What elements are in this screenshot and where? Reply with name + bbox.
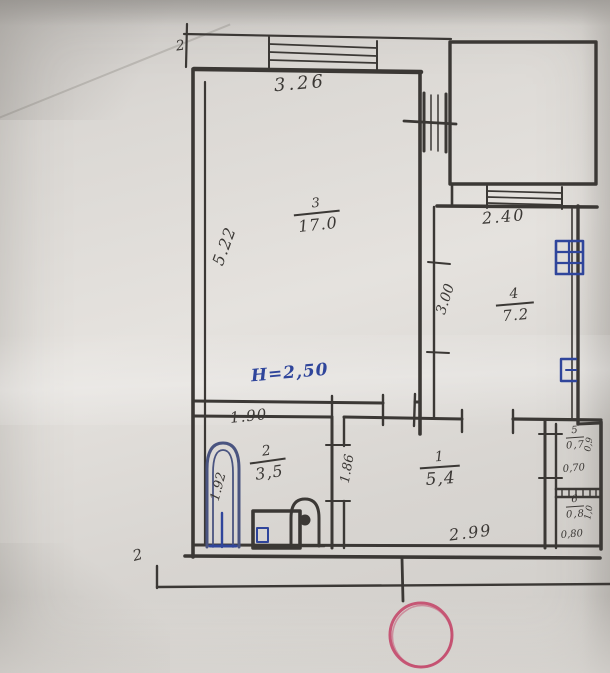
room3-right-wall bbox=[420, 72, 434, 434]
facade-line bbox=[157, 558, 610, 601]
radiator-icon bbox=[561, 359, 576, 381]
floor-plan-photo: 3.26 2 5.22 3 17.0 H=2,50 2.40 3.00 4 7.… bbox=[0, 0, 610, 673]
vent-shaft-icon bbox=[404, 93, 456, 152]
toilet-icon bbox=[286, 499, 324, 546]
fraction-bar bbox=[566, 505, 584, 507]
section-marker-top: 2 bbox=[175, 38, 186, 54]
room4-label: 4 7.2 bbox=[485, 285, 544, 327]
left-wall bbox=[193, 69, 205, 557]
sink-icon bbox=[253, 511, 300, 548]
room-number: 5 bbox=[556, 424, 593, 437]
room2-label: 2 3,5 bbox=[239, 440, 298, 485]
fraction-bar bbox=[566, 436, 584, 438]
window-top-icon bbox=[269, 37, 377, 71]
dim-kitchen-width: 2.40 bbox=[481, 207, 526, 228]
room-number: 1 bbox=[410, 448, 469, 467]
floor-plan-drawing bbox=[0, 0, 610, 673]
room1-label: 1 5,4 bbox=[410, 448, 471, 491]
adjacent-room-outline bbox=[450, 42, 596, 206]
red-circle-annotation bbox=[389, 602, 456, 671]
bottom-wall bbox=[185, 545, 600, 558]
room3-label: 3 17.0 bbox=[285, 194, 349, 237]
